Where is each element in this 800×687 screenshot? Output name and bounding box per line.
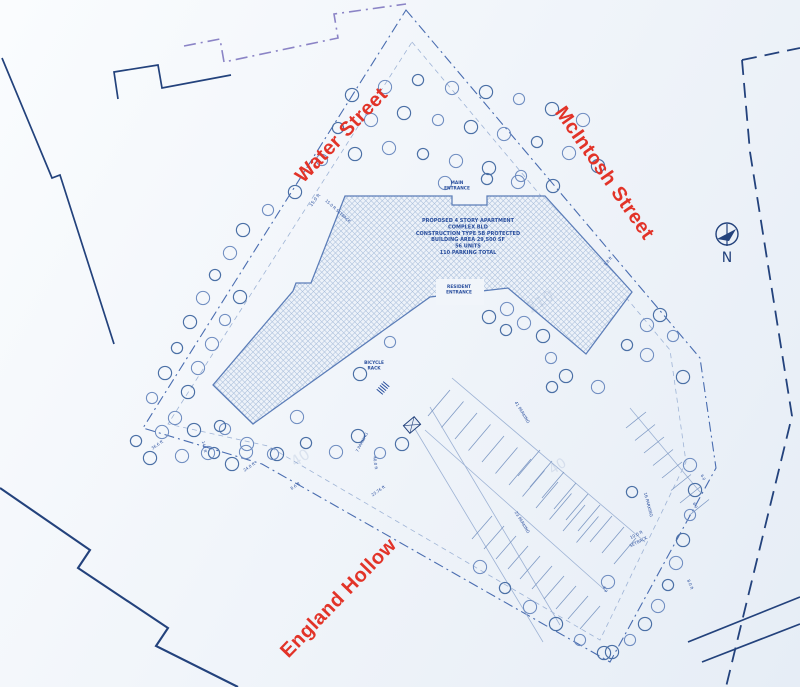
tree-icon xyxy=(158,366,171,379)
tree-icon xyxy=(130,435,141,446)
tree-icon xyxy=(545,352,556,363)
parking-stripe xyxy=(590,516,612,542)
tree-icon xyxy=(640,318,653,331)
tree-icon xyxy=(626,486,637,497)
tree-icon xyxy=(155,425,168,438)
tree-icon xyxy=(223,246,236,259)
building-info-line: PROPOSED 4 STORY APARTMENT xyxy=(422,218,515,224)
tree-icon xyxy=(591,380,604,393)
parking-stripe xyxy=(523,471,545,497)
parking-stripe xyxy=(520,556,540,579)
parking-stripe xyxy=(689,500,709,516)
dimension-label: 8.6 ft xyxy=(289,480,301,490)
tree-icon xyxy=(559,369,572,382)
tree-icon xyxy=(500,302,513,315)
tree-icon xyxy=(236,223,249,236)
building-info-line: COMPLEX BLD xyxy=(448,224,488,230)
tree-icon xyxy=(546,381,557,392)
tree-icon xyxy=(168,411,181,424)
tree-icon xyxy=(638,617,651,630)
tree-icon xyxy=(640,348,653,361)
tree-icon xyxy=(513,93,524,104)
trees-layer xyxy=(130,74,701,659)
parking-stripe xyxy=(566,494,588,520)
tree-icon xyxy=(651,599,664,612)
tree-icon xyxy=(233,290,246,303)
parking-stripe xyxy=(550,494,572,520)
tree-icon xyxy=(417,148,428,159)
tree-icon xyxy=(432,114,443,125)
parking-stripe xyxy=(602,527,624,553)
parking-stripe xyxy=(442,402,464,428)
tree-icon xyxy=(464,120,477,133)
boundary-line xyxy=(2,58,114,344)
tree-icon xyxy=(348,147,361,160)
site-plan-drawing: 15.0 ft15.0 ft SETBACK1.8 ft36.6 ft147 f… xyxy=(0,0,800,687)
parking-stripe xyxy=(544,576,564,599)
tree-icon xyxy=(662,579,673,590)
tree-icon xyxy=(511,175,524,188)
tree-icon xyxy=(624,634,635,645)
tree-icon xyxy=(175,449,188,462)
tree-icon xyxy=(653,308,666,321)
tree-icon xyxy=(683,458,696,471)
tree-icon xyxy=(208,447,219,458)
tree-icon xyxy=(196,291,209,304)
building-info-line: 110 PARKING TOTAL xyxy=(440,250,497,256)
tree-icon xyxy=(523,600,536,613)
site-plan-page: 15.0 ft15.0 ft SETBACK1.8 ft36.6 ft147 f… xyxy=(0,0,800,687)
tree-icon xyxy=(384,336,395,347)
parking-stripe xyxy=(428,390,450,416)
parking-stripe xyxy=(496,536,516,559)
boundary-line xyxy=(742,48,800,60)
entrance-label: MAIN xyxy=(451,180,464,186)
entrance-label: RACK xyxy=(367,366,381,372)
tree-icon xyxy=(382,141,395,154)
dimension-label: 8.0 ft xyxy=(686,579,695,591)
entrance-label: ENTRANCE xyxy=(446,290,472,296)
tree-icon xyxy=(240,437,253,450)
parking-stripe xyxy=(653,450,673,466)
tree-icon xyxy=(481,173,492,184)
tree-icon xyxy=(667,330,678,341)
boundary-line xyxy=(114,65,231,99)
tree-icon xyxy=(536,329,549,342)
parking-stripe xyxy=(484,526,504,549)
tree-icon xyxy=(219,314,230,325)
parking-stripe xyxy=(509,459,531,485)
tree-icon xyxy=(597,646,610,659)
tree-icon xyxy=(531,136,542,147)
boundary-lines-layer xyxy=(0,4,800,687)
boundary-line xyxy=(726,60,792,687)
tree-icon xyxy=(574,634,585,645)
dimension-label: 6.0 xyxy=(700,473,708,481)
parking-stripe xyxy=(472,516,492,539)
dimension-label: 41 PARKING xyxy=(514,400,532,424)
tree-icon xyxy=(517,316,530,329)
north-arrow-icon: N xyxy=(716,223,738,266)
parking-stripe xyxy=(635,425,655,441)
tree-icon xyxy=(497,127,510,140)
parking-stripe xyxy=(455,413,477,439)
boundary-line xyxy=(688,597,800,642)
tree-icon xyxy=(445,81,458,94)
tree-icon xyxy=(209,269,220,280)
tree-icon xyxy=(353,367,366,380)
tree-icon xyxy=(143,451,156,464)
boundary-line xyxy=(143,10,716,662)
tree-icon xyxy=(225,457,238,470)
tree-icon xyxy=(267,448,278,459)
tree-icon xyxy=(546,179,559,192)
parking-stripe xyxy=(482,436,504,462)
utility-box-icon xyxy=(403,417,420,434)
dimension-label: 36.6 ft xyxy=(150,439,164,451)
tree-icon xyxy=(395,437,408,450)
parking-stripe xyxy=(496,448,518,474)
parking-stripe xyxy=(469,425,491,451)
parking-stripe xyxy=(554,483,576,509)
entrance-label: ENTRANCE xyxy=(444,186,470,192)
building-info-line: CONSTRUCTION TYPE 5B PROTECTED xyxy=(416,231,520,237)
parking-stripe xyxy=(577,517,599,543)
dimension-label: 40 xyxy=(287,445,313,470)
parking-stripe xyxy=(556,586,576,609)
boundary-line xyxy=(452,378,645,542)
tree-icon xyxy=(262,204,273,215)
dimension-label: 40.0 ft xyxy=(372,456,379,470)
tree-icon xyxy=(500,324,511,335)
parking-stripe xyxy=(532,566,552,589)
parking-stripe xyxy=(518,450,540,476)
tree-icon xyxy=(205,337,218,350)
dimension-label: 16 PARKING xyxy=(643,492,654,518)
parking-stripe xyxy=(626,412,646,428)
building-info-line: 56 UNITS xyxy=(455,244,481,250)
tree-icon xyxy=(397,106,410,119)
boundary-line xyxy=(430,407,560,625)
boundary-line xyxy=(168,42,686,640)
parking-stripe xyxy=(580,606,600,629)
tree-icon xyxy=(621,339,632,350)
tree-icon xyxy=(146,392,157,403)
tree-icon xyxy=(482,310,495,323)
tree-icon xyxy=(191,361,204,374)
parking-stripe xyxy=(671,475,691,491)
tree-icon xyxy=(482,161,495,174)
tree-icon xyxy=(676,533,689,546)
tree-icon xyxy=(676,370,689,383)
dimension-label: 15.0 ft xyxy=(308,193,322,208)
boundary-line xyxy=(184,4,406,62)
tree-icon xyxy=(479,85,492,98)
north-label: N xyxy=(722,250,732,266)
parking-stripe xyxy=(536,482,558,508)
tree-icon xyxy=(183,315,196,328)
entrance-label: BICYCLE xyxy=(364,360,384,366)
bicycle-rack-icon xyxy=(377,382,390,395)
dimension-label: 6.0 xyxy=(602,585,610,593)
tree-icon xyxy=(290,410,303,423)
building-info-line: BUILDING AREA 29,500 SF xyxy=(431,237,505,243)
parking-stripe xyxy=(568,596,588,619)
tree-icon xyxy=(549,617,562,630)
dimension-label: 23.76 ft xyxy=(370,484,386,497)
tree-icon xyxy=(669,556,682,569)
entrance-label: RESIDENT xyxy=(447,284,471,290)
parking-stripes-layer xyxy=(428,390,709,629)
tree-icon xyxy=(171,342,182,353)
tree-icon xyxy=(329,445,342,458)
dimension-label: 24.0 ft xyxy=(242,461,256,473)
tree-icon xyxy=(449,154,462,167)
boundary-line xyxy=(630,408,700,492)
parking-stripe xyxy=(662,462,682,478)
boundary-line xyxy=(0,488,238,687)
